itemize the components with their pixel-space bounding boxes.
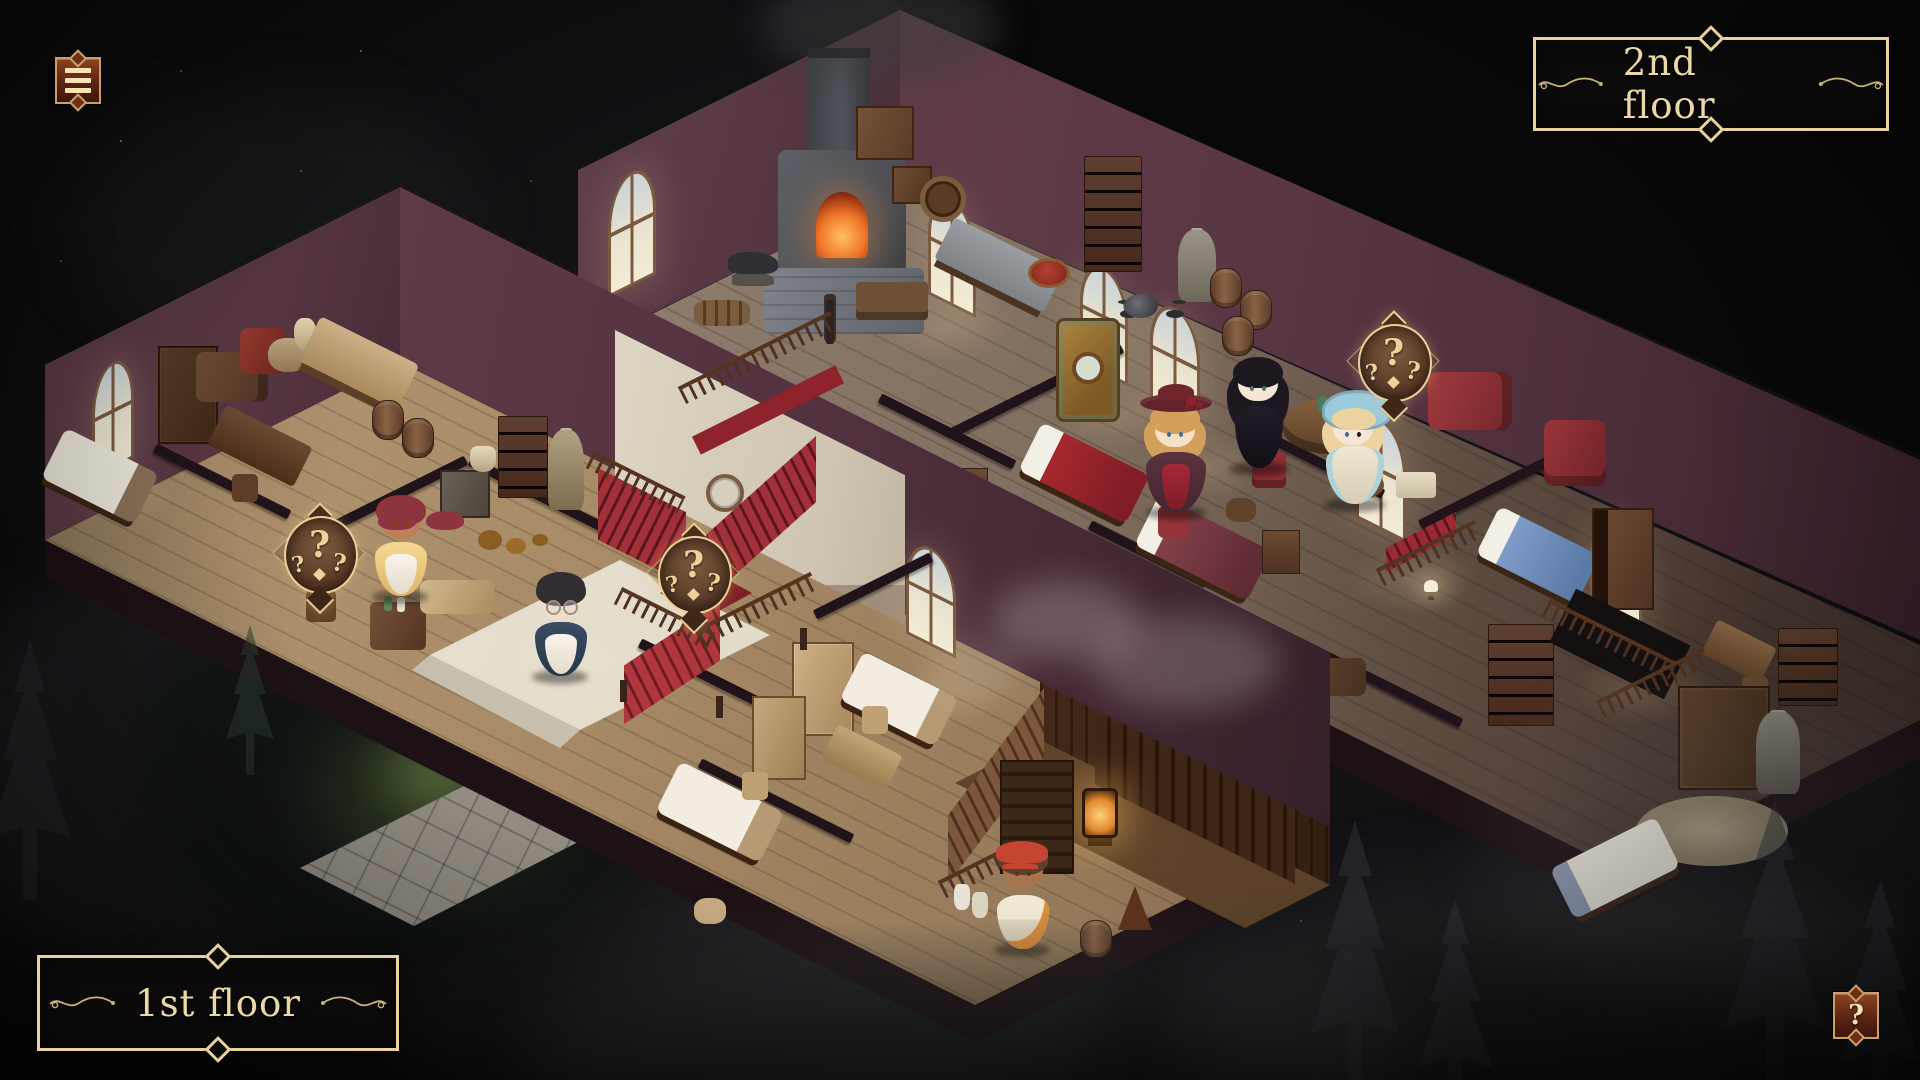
- chair: [742, 772, 768, 800]
- help-button[interactable]: ?: [1833, 992, 1879, 1039]
- crate-stack: [440, 470, 490, 518]
- red-armchair: [1428, 372, 1512, 430]
- bucket: [470, 446, 496, 472]
- character-housekeeper-glasses[interactable]: [528, 566, 594, 684]
- button-diamond: [69, 93, 87, 111]
- character-lady-black-gown[interactable]: [1225, 348, 1295, 476]
- hamburger-icon: [65, 88, 91, 93]
- log-pile: [694, 300, 750, 326]
- coffee-table: [370, 602, 426, 650]
- newel-post: [620, 680, 627, 702]
- floor-label-first[interactable]: 1st floor: [37, 955, 399, 1051]
- anvil: [728, 252, 778, 274]
- character-hair: [376, 495, 426, 526]
- floor-label-text: 1st floor: [135, 982, 301, 1025]
- character-lady-red-gown-hat[interactable]: [1142, 394, 1210, 520]
- table-lamp: [1424, 580, 1438, 592]
- steam-cloud: [930, 640, 1020, 700]
- bookshelf: [1084, 156, 1142, 272]
- character-eyes: [1167, 432, 1171, 437]
- flourish-icon: [1536, 73, 1607, 95]
- cart-wheel: [920, 176, 966, 222]
- mystery-bubble-lounge[interactable]: ? ? ?: [278, 508, 360, 608]
- grinding-bench: [856, 282, 928, 320]
- character-glasses: [546, 600, 561, 615]
- barrel: [372, 400, 404, 440]
- flourish-icon: [1815, 73, 1886, 95]
- barrel: [1210, 268, 1242, 308]
- vault-dial: [1072, 352, 1104, 384]
- bookshelf: [1488, 624, 1554, 726]
- question-mark: ?: [1383, 332, 1404, 374]
- mystery-bubble-parlor[interactable]: ? ? ?: [1352, 316, 1434, 416]
- stool: [1226, 498, 1256, 522]
- spider-sculpture: [1124, 294, 1158, 318]
- character-dress: [1326, 446, 1384, 504]
- character-glasses: [563, 600, 578, 615]
- stool: [694, 898, 726, 924]
- linen-stack: [1396, 472, 1436, 498]
- floor-label-second[interactable]: 2nd floor: [1533, 37, 1889, 131]
- milk-jugs: [954, 884, 970, 910]
- barrel: [402, 418, 434, 458]
- hamburger-icon: [65, 78, 91, 83]
- gear-pieces: [478, 530, 502, 550]
- bookshelf: [1778, 628, 1838, 706]
- character-dress: [1235, 406, 1283, 468]
- shelf-unit: [498, 416, 548, 498]
- question-mark: ?: [683, 544, 704, 586]
- lantern-stove: [1082, 788, 1118, 838]
- character-hair: [536, 575, 586, 606]
- hamburger-icon: [65, 68, 91, 73]
- character-eyes: [393, 522, 397, 527]
- panel-diamond: [205, 1036, 232, 1063]
- character-headscarf: [996, 841, 1048, 863]
- desk-chair: [232, 474, 258, 502]
- character-eyes: [1015, 871, 1019, 876]
- character-eyes: [1345, 432, 1349, 437]
- flourish-icon: [317, 992, 389, 1014]
- button-diamond: [69, 49, 87, 67]
- wardrobe-open: [1592, 508, 1654, 610]
- menu-button[interactable]: [55, 57, 101, 104]
- question-mark: ?: [309, 524, 330, 566]
- character-maid-yellow-dress[interactable]: [368, 486, 434, 604]
- game-viewport: ? ? ? ? ? ? ? ? ?: [0, 0, 1920, 1080]
- steam-cloud: [1090, 615, 1280, 710]
- forge-fire: [816, 192, 868, 258]
- help-icon: ?: [1848, 1000, 1864, 1031]
- crate: [856, 106, 914, 160]
- red-armchair: [1544, 420, 1606, 486]
- meat-platter: [1028, 258, 1070, 288]
- nightstand: [1262, 530, 1300, 574]
- character-hat-roses: [1186, 396, 1196, 406]
- character-eyes: [1250, 386, 1254, 391]
- flourish-icon: [47, 992, 119, 1014]
- character-hair: [1233, 357, 1283, 388]
- mystery-bubble-staircase[interactable]: ? ? ?: [652, 528, 734, 628]
- floor-label-text: 2nd floor: [1623, 41, 1799, 127]
